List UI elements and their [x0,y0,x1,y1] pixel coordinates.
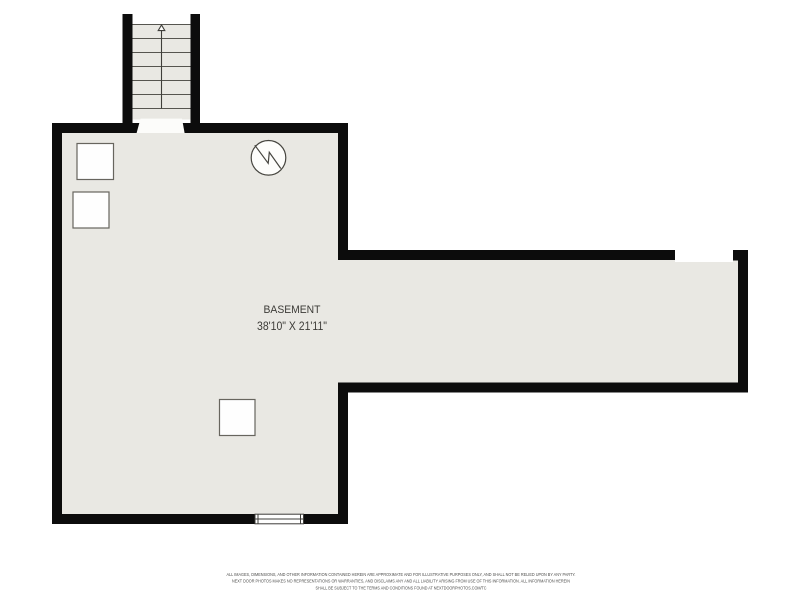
svg-text:38'10" X 21'11": 38'10" X 21'11" [257,319,327,333]
svg-text:SHALL BE SUBJECT TO THE TERMS: SHALL BE SUBJECT TO THE TERMS AND CONDIT… [316,586,487,591]
svg-text:BASEMENT: BASEMENT [264,304,321,316]
svg-text:NEXT DOOR PHOTOS MAKES NO REPR: NEXT DOOR PHOTOS MAKES NO REPRESENTATION… [232,579,570,584]
svg-text:ALL IMAGES, DIMENSIONS, AND OT: ALL IMAGES, DIMENSIONS, AND OTHER INFORM… [227,572,576,577]
